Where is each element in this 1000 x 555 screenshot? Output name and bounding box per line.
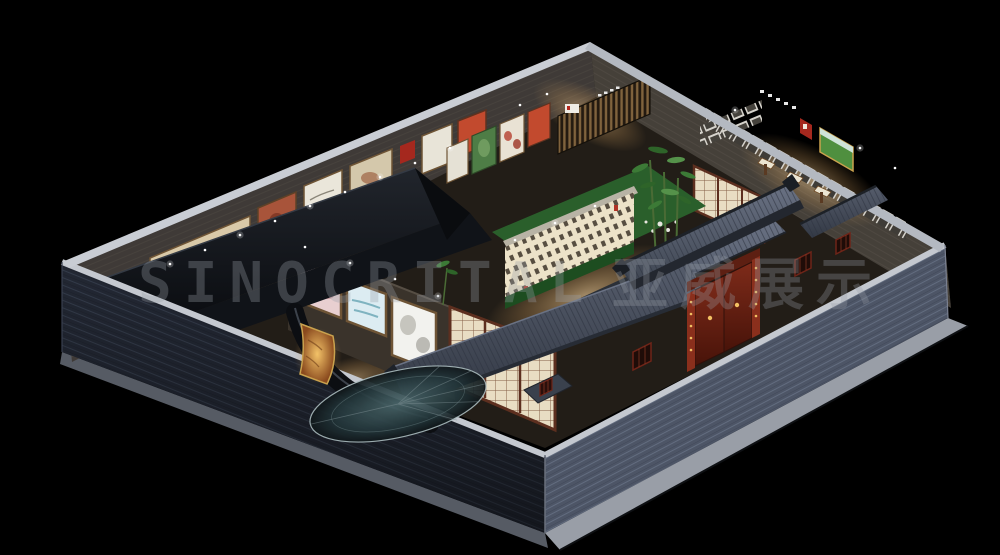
render-canvas: SINOCRITAL 亚威展示 [0,0,1000,555]
exhibition-hall-render: SINOCRITAL 亚威展示 [0,0,1000,555]
sign-glyph [803,124,807,129]
watermark: SINOCRITAL 亚威展示 [138,251,884,318]
seal-mark [567,106,570,110]
ink-detail [400,315,416,335]
painting-detail [478,139,490,157]
seal-mark [614,205,618,211]
watermark-latin-text: SINOCRITAL [138,251,595,316]
poster-art [513,139,521,149]
watermark-cjk-text: 亚威展示 [612,253,884,318]
poster-art [504,131,512,141]
ink-detail [416,337,430,353]
